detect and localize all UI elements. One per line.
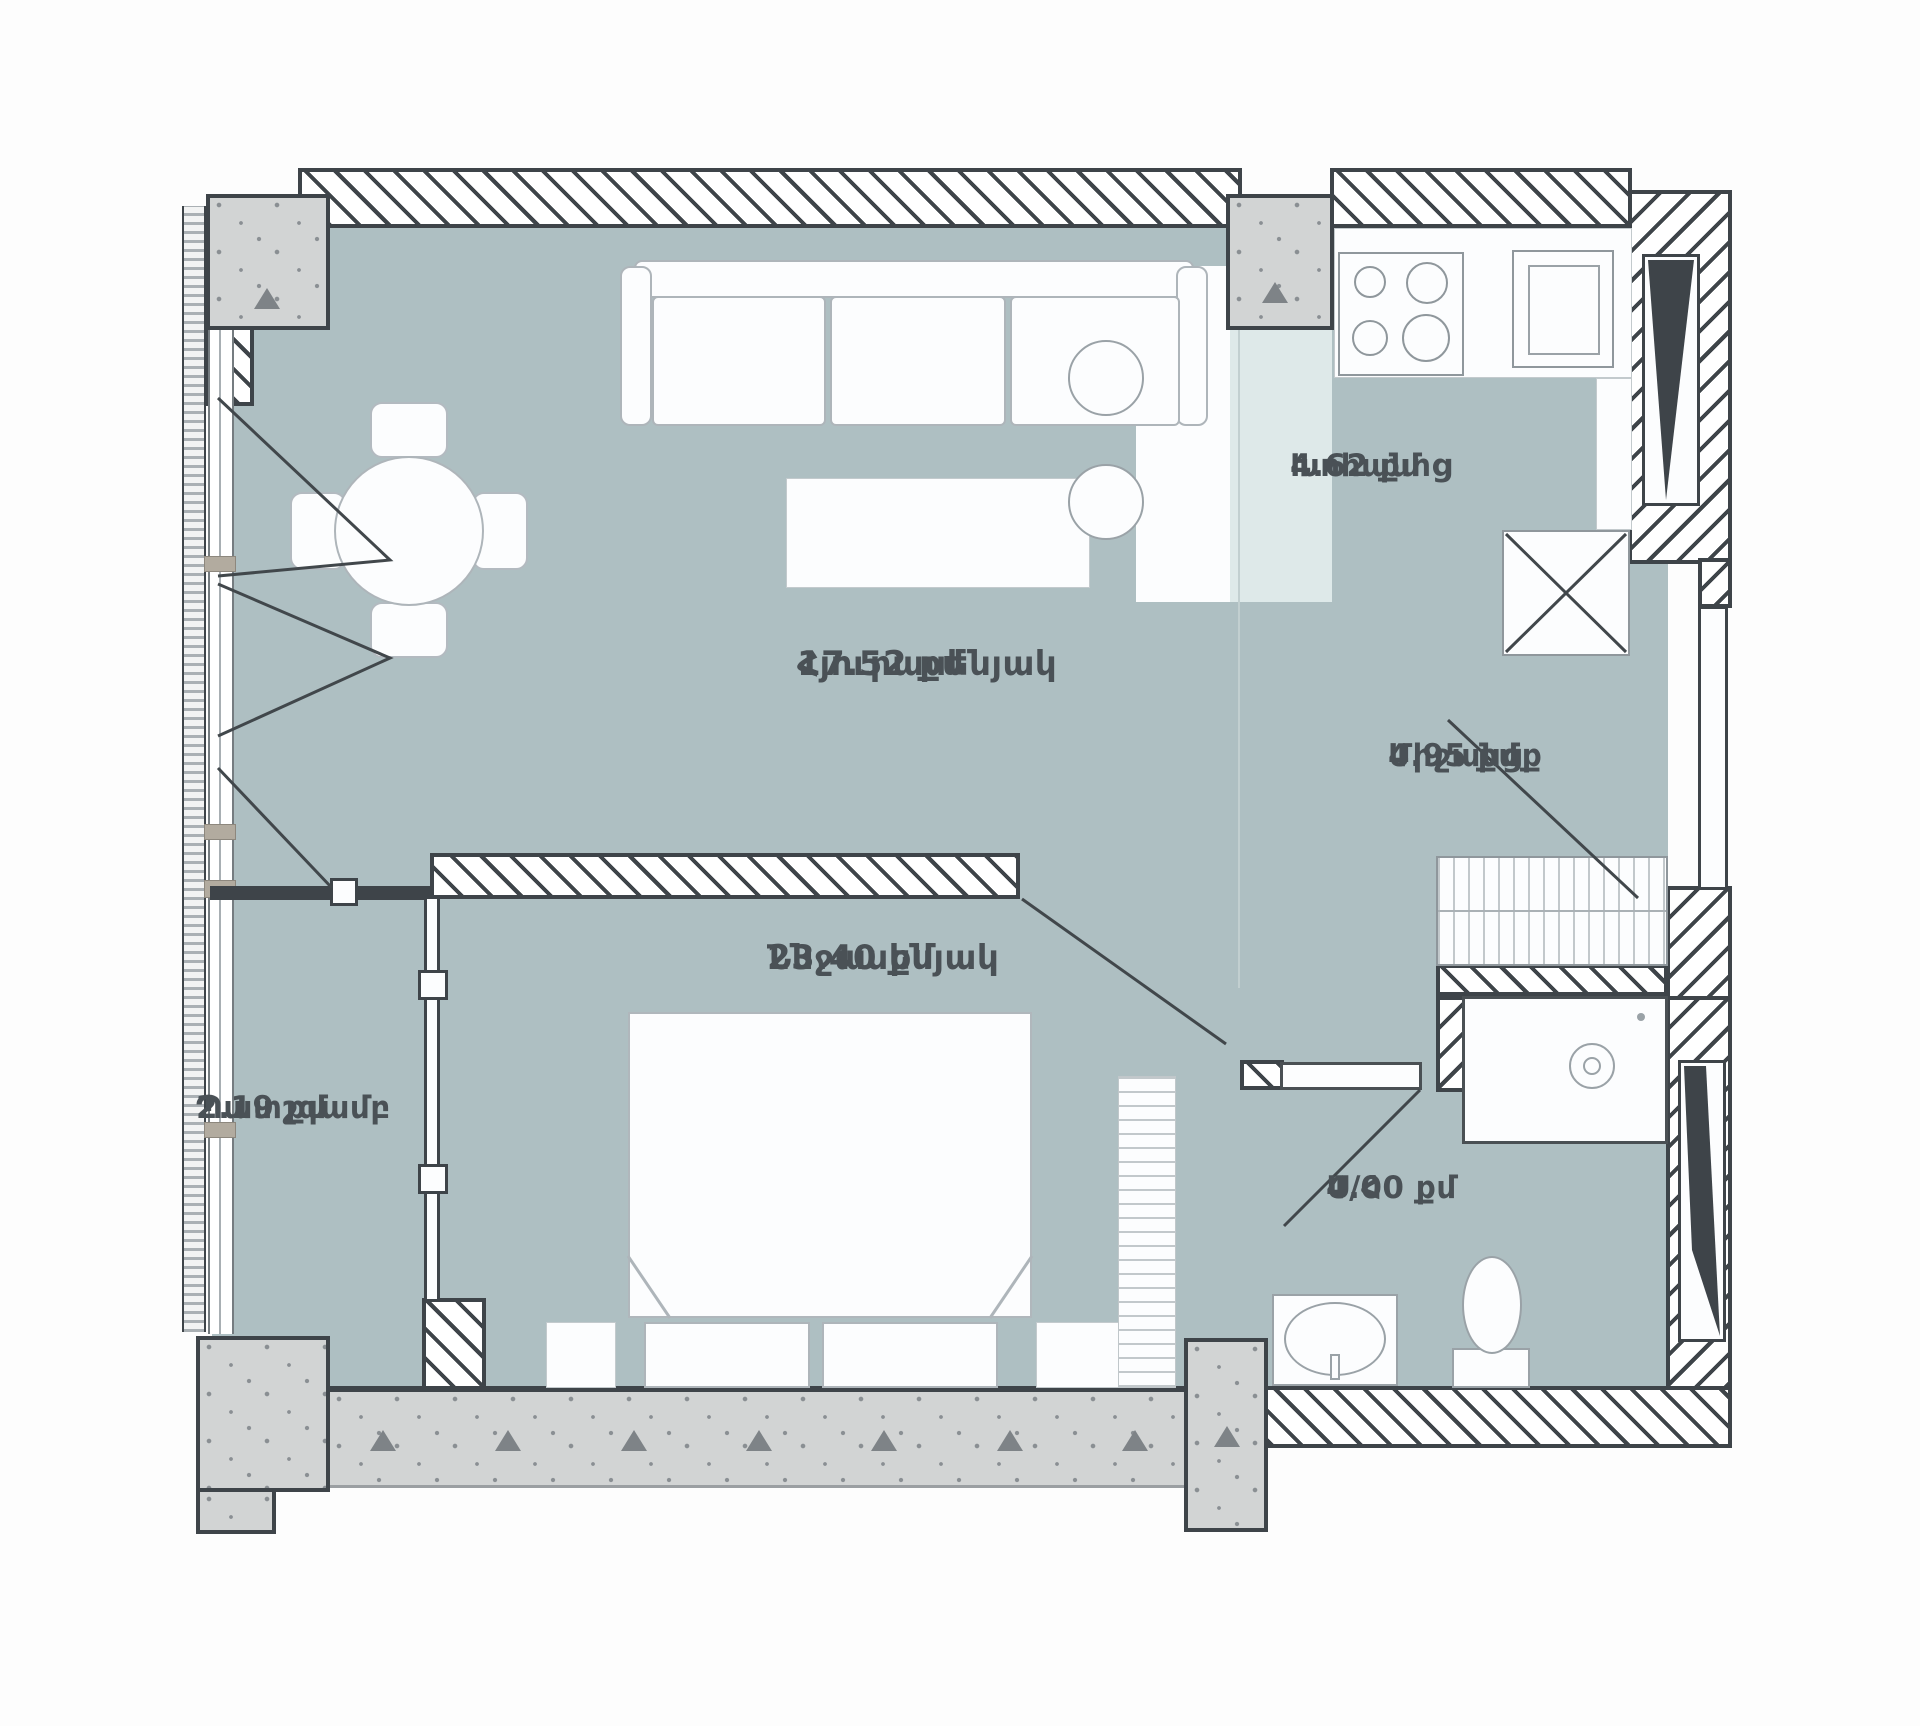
burner xyxy=(1354,266,1386,298)
hallway-divider-line xyxy=(1238,228,1240,988)
floor-plan: Հյուրասենյակ 17.52 քմ Խոհանոց 4.62 քմ Մի… xyxy=(0,0,1920,1726)
pillow xyxy=(644,1322,810,1388)
concrete-triangle xyxy=(871,1430,897,1451)
kitchen-tall-cabinet xyxy=(1596,378,1632,530)
room-area: 4.00 քմ xyxy=(1326,1168,1457,1210)
sofa-armrest xyxy=(1176,266,1208,426)
toilet-bowl xyxy=(1462,1256,1522,1354)
bedroom-wardrobe xyxy=(1118,1076,1176,1388)
wall-right-entry-jamb xyxy=(1698,558,1732,608)
pier-top-middle xyxy=(1226,194,1334,330)
wall-right-mid xyxy=(1666,886,1732,1000)
sofa-cushion xyxy=(830,296,1006,426)
kitchen-sink xyxy=(1512,250,1614,368)
bath-sink-tap xyxy=(1330,1354,1340,1380)
room-area: 4.95 քմ xyxy=(1388,736,1519,778)
concrete-triangle xyxy=(621,1430,647,1451)
dining-chair xyxy=(370,402,448,458)
left-facade-insulation xyxy=(182,206,206,1332)
sofa-cushion xyxy=(652,296,826,426)
concrete-triangle xyxy=(254,288,280,309)
sofa-back xyxy=(634,260,1194,298)
sink-basin xyxy=(1528,265,1600,355)
pillow xyxy=(822,1322,998,1388)
balcony-door-frame xyxy=(330,878,358,906)
burner xyxy=(1352,320,1388,356)
wall-bathroom-door-stub xyxy=(1240,1060,1284,1090)
window-mullion xyxy=(204,824,236,840)
balcony-divider-wall xyxy=(210,886,434,900)
coffee-table xyxy=(786,478,1090,588)
bed xyxy=(628,1012,1032,1318)
entry-door-leaf xyxy=(1698,606,1728,890)
closet-shelf-line xyxy=(1438,910,1666,912)
wall-bathroom-bottom xyxy=(1240,1386,1732,1448)
room-area: 17.52 քմ xyxy=(797,642,964,688)
wall-top-living xyxy=(298,168,1242,228)
pier-bottom-right xyxy=(1184,1338,1268,1532)
bedroom-left-wall xyxy=(424,899,440,1299)
dining-chair xyxy=(370,602,448,658)
concrete-triangle xyxy=(997,1430,1023,1451)
concrete-triangle xyxy=(1122,1430,1148,1451)
wall-closet-bottom xyxy=(1436,964,1668,996)
concrete-triangle xyxy=(1214,1426,1240,1447)
shower xyxy=(1462,996,1668,1144)
room-area: 2.19 քմ xyxy=(196,1088,327,1130)
toilet-tank xyxy=(1452,1348,1530,1388)
terrace-triangles xyxy=(370,1430,1148,1451)
bar-stool xyxy=(1068,464,1144,540)
wall-stud xyxy=(418,1164,448,1194)
concrete-triangle xyxy=(746,1430,772,1451)
concrete-triangle xyxy=(1262,282,1288,303)
shower-drain-center xyxy=(1583,1057,1601,1075)
bar-stool xyxy=(1068,340,1144,416)
wall-bedroom-top xyxy=(430,853,1020,899)
pier-bottom-left-tab xyxy=(196,1488,276,1534)
room-area: 23.40 քմ xyxy=(767,936,934,982)
sofa-armrest xyxy=(620,266,652,426)
wall-top-kitchen xyxy=(1330,168,1632,228)
living-window-band xyxy=(208,330,234,888)
concrete-triangle xyxy=(495,1430,521,1451)
window-mullion xyxy=(204,556,236,572)
duct-shaft-top xyxy=(1642,254,1700,506)
nightstand xyxy=(546,1322,616,1388)
burner xyxy=(1402,314,1450,362)
wall-bedroom-left-foot xyxy=(422,1298,486,1390)
pier-top-left xyxy=(206,194,330,330)
pier-bottom-left xyxy=(196,1336,330,1492)
concrete-triangle xyxy=(370,1430,396,1451)
dining-table xyxy=(334,456,484,606)
duct-shaft-bathroom xyxy=(1678,1060,1726,1342)
stove xyxy=(1338,252,1464,376)
bathroom-door-leaf xyxy=(1280,1062,1422,1090)
room-area: 4.62 քմ xyxy=(1290,446,1421,488)
hallway-closet xyxy=(1436,856,1668,966)
terrace-band xyxy=(330,1386,1188,1488)
burner xyxy=(1406,262,1448,304)
shower-dot xyxy=(1637,1013,1645,1021)
kitchen-appliance-box xyxy=(1502,530,1630,656)
wall-stud xyxy=(418,970,448,1000)
